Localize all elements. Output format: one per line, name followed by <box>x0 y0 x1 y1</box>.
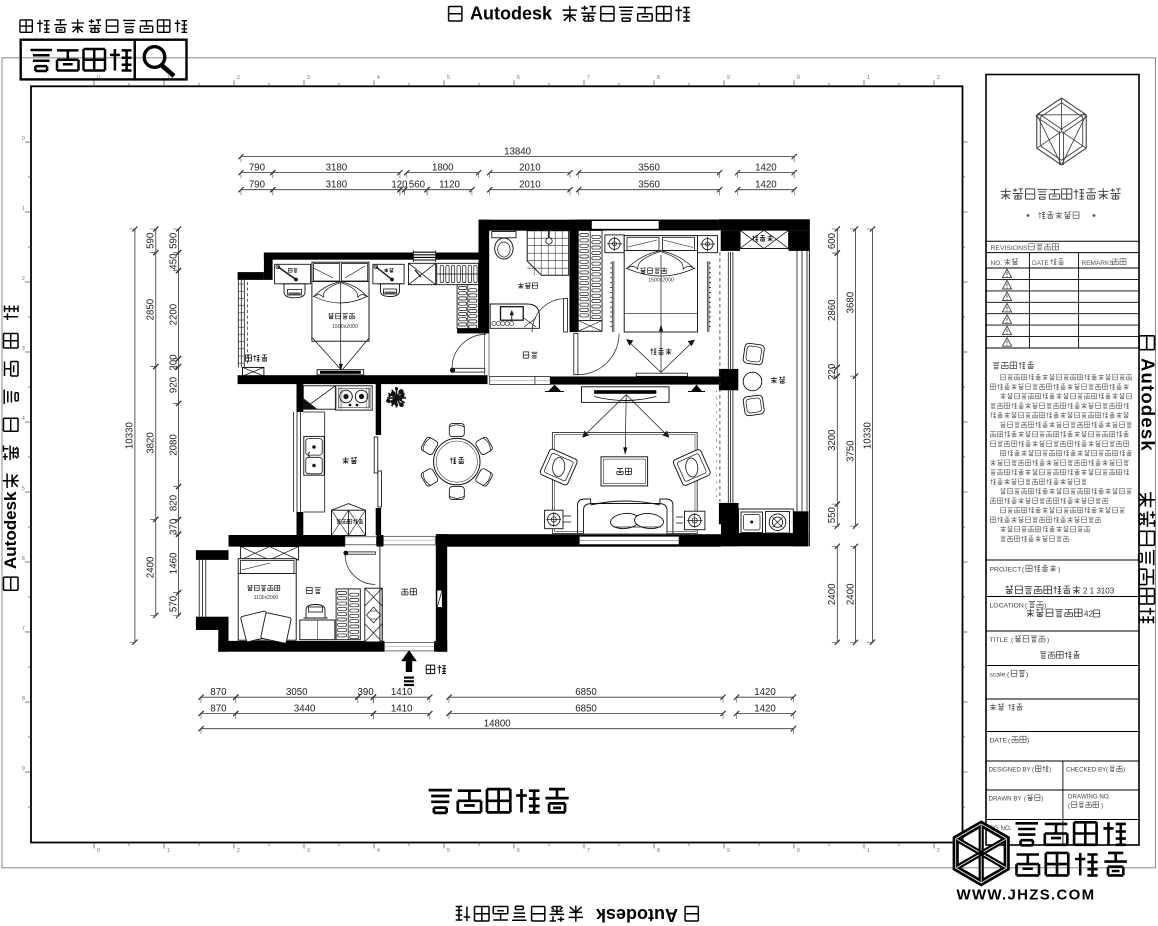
svg-text:2010: 2010 <box>519 180 541 191</box>
svg-text:): ) <box>1026 672 1028 679</box>
svg-text:3200: 3200 <box>827 429 838 451</box>
svg-text:820: 820 <box>168 494 179 511</box>
svg-text:LOCATION: LOCATION <box>990 603 1024 610</box>
svg-text:3050: 3050 <box>286 687 308 698</box>
svg-text:9: 9 <box>22 766 25 772</box>
svg-text:7: 7 <box>22 626 25 632</box>
svg-text:3820: 3820 <box>146 432 157 454</box>
svg-text:8: 8 <box>657 848 660 854</box>
svg-text:WWW.JHZS.COM: WWW.JHZS.COM <box>957 887 1096 904</box>
svg-text:4: 4 <box>377 848 380 854</box>
svg-text:7: 7 <box>587 848 590 854</box>
svg-text:920: 920 <box>168 376 179 393</box>
svg-text:120: 120 <box>391 180 408 191</box>
svg-text:870: 870 <box>210 703 227 714</box>
svg-text:450: 450 <box>168 253 179 270</box>
svg-text:6: 6 <box>517 75 520 81</box>
svg-text:1500x2000: 1500x2000 <box>332 324 358 330</box>
svg-text:DRAWING NO.: DRAWING NO. <box>1068 794 1111 801</box>
svg-text:3180: 3180 <box>326 162 348 173</box>
svg-text:590: 590 <box>168 232 179 249</box>
svg-text:3680: 3680 <box>845 291 856 313</box>
svg-text:): ) <box>1049 767 1051 774</box>
svg-text:3: 3 <box>307 848 310 854</box>
svg-text:1: 1 <box>867 848 870 854</box>
svg-text:2400: 2400 <box>845 583 856 605</box>
svg-text:DATE: DATE <box>990 738 1008 745</box>
svg-text:REMARKS: REMARKS <box>1082 260 1115 267</box>
svg-text:): ) <box>1101 803 1103 810</box>
svg-text:870: 870 <box>210 687 227 698</box>
svg-text:2400: 2400 <box>146 556 157 578</box>
svg-text:10330: 10330 <box>862 422 873 450</box>
svg-text:Autodesk: Autodesk <box>470 4 553 24</box>
svg-text:scale: scale <box>990 672 1006 679</box>
svg-text:1420: 1420 <box>755 180 777 191</box>
svg-text:Autodesk: Autodesk <box>595 905 678 925</box>
svg-text:2: 2 <box>237 75 240 81</box>
svg-text:2080: 2080 <box>168 434 179 456</box>
svg-text:9: 9 <box>727 75 730 81</box>
svg-text:2: 2 <box>22 276 25 282</box>
svg-text:Autodesk: Autodesk <box>1 491 20 569</box>
svg-text:3440: 3440 <box>294 703 316 714</box>
svg-text:9: 9 <box>727 848 730 854</box>
svg-text:14800: 14800 <box>484 719 512 730</box>
svg-text:): ) <box>1058 567 1060 574</box>
svg-text:): ) <box>1027 738 1029 745</box>
svg-text:1420: 1420 <box>755 162 777 173</box>
svg-text:PROJECT: PROJECT <box>990 567 1022 574</box>
svg-text:5: 5 <box>447 75 450 81</box>
svg-text:13840: 13840 <box>504 146 532 157</box>
svg-text:CHECKED BY: CHECKED BY <box>1066 767 1106 774</box>
svg-text:0: 0 <box>797 848 800 854</box>
svg-text:0: 0 <box>97 848 100 854</box>
svg-text:1120: 1120 <box>439 180 460 191</box>
svg-text:5: 5 <box>22 486 25 492</box>
svg-text:3180: 3180 <box>326 180 348 191</box>
svg-text:42: 42 <box>1084 610 1093 619</box>
svg-text:4: 4 <box>22 416 25 422</box>
svg-text:7: 7 <box>587 75 590 81</box>
svg-text:790: 790 <box>249 162 266 173</box>
svg-text:600: 600 <box>827 232 838 249</box>
svg-text:REVISIONS: REVISIONS <box>991 245 1028 252</box>
svg-text:8: 8 <box>657 75 660 81</box>
svg-text:2: 2 <box>237 848 240 854</box>
svg-text:3: 3 <box>307 75 310 81</box>
svg-text:DESIGNED BY: DESIGNED BY <box>989 767 1031 774</box>
svg-text:): ) <box>1047 637 1049 644</box>
svg-text:10330: 10330 <box>125 422 136 450</box>
svg-text:0: 0 <box>22 136 25 142</box>
svg-text:0: 0 <box>797 75 800 81</box>
svg-text:1: 1 <box>22 206 25 212</box>
svg-text:1100x2000: 1100x2000 <box>254 595 279 601</box>
svg-text:2200: 2200 <box>168 303 179 325</box>
svg-text:390: 390 <box>358 687 375 698</box>
svg-text:1: 1 <box>167 848 170 854</box>
svg-text:1410: 1410 <box>391 687 413 698</box>
svg-text:3750: 3750 <box>845 440 856 462</box>
svg-text:1420: 1420 <box>754 703 776 714</box>
svg-text:TITLE: TITLE <box>990 637 1009 644</box>
svg-text:2860: 2860 <box>827 299 838 321</box>
svg-text:NO.: NO. <box>991 260 1003 267</box>
svg-text:3: 3 <box>22 346 25 352</box>
svg-text:8: 8 <box>22 696 25 702</box>
svg-text:370: 370 <box>168 518 179 535</box>
svg-text:550: 550 <box>827 507 838 524</box>
svg-text:2400: 2400 <box>827 583 838 605</box>
svg-text:2 1 3103: 2 1 3103 <box>1083 587 1115 596</box>
svg-text:1410: 1410 <box>391 703 413 714</box>
svg-text:Autodesk: Autodesk <box>1138 358 1158 452</box>
svg-text:6850: 6850 <box>575 687 597 698</box>
svg-text:DRAWN BY: DRAWN BY <box>989 796 1022 803</box>
svg-text:): ) <box>1041 796 1043 803</box>
svg-text:): ) <box>1044 603 1046 610</box>
svg-text:1460: 1460 <box>168 552 179 574</box>
svg-text:590: 590 <box>146 232 157 249</box>
svg-text:1: 1 <box>867 75 870 81</box>
svg-text:3560: 3560 <box>638 180 660 191</box>
svg-text:2: 2 <box>937 75 940 81</box>
svg-text:2850: 2850 <box>146 298 157 320</box>
svg-text:DATE: DATE <box>1032 260 1050 267</box>
svg-text:3560: 3560 <box>638 162 660 173</box>
svg-text:6: 6 <box>22 556 25 562</box>
svg-text:5: 5 <box>447 848 450 854</box>
svg-text:6850: 6850 <box>575 703 597 714</box>
svg-text:4: 4 <box>377 75 380 81</box>
svg-text:2010: 2010 <box>519 162 541 173</box>
svg-text:570: 570 <box>168 595 179 612</box>
svg-text:560: 560 <box>409 180 426 191</box>
svg-text:6: 6 <box>517 848 520 854</box>
svg-text:1800: 1800 <box>432 162 454 173</box>
svg-text:1420: 1420 <box>754 687 776 698</box>
svg-text:): ) <box>1123 767 1125 774</box>
svg-text:790: 790 <box>249 180 266 191</box>
svg-text:2: 2 <box>937 848 940 854</box>
